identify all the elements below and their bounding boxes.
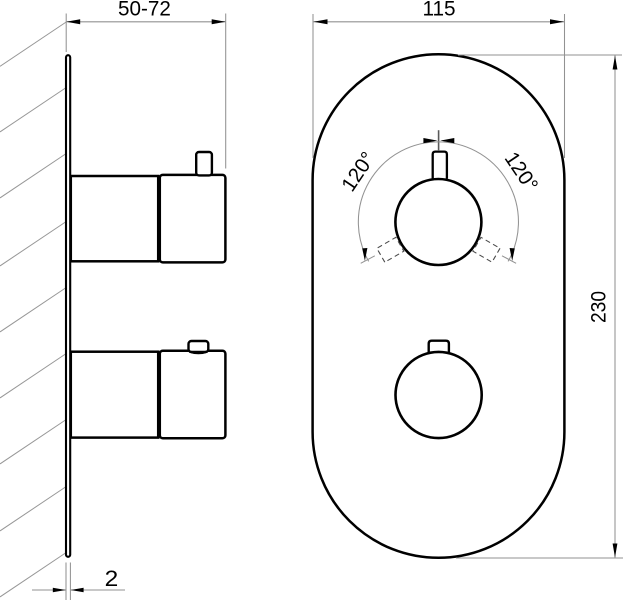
svg-text:50-72: 50-72: [118, 0, 171, 21]
svg-text:115: 115: [422, 0, 455, 21]
svg-text:230: 230: [588, 291, 611, 323]
svg-text:2: 2: [105, 566, 119, 591]
